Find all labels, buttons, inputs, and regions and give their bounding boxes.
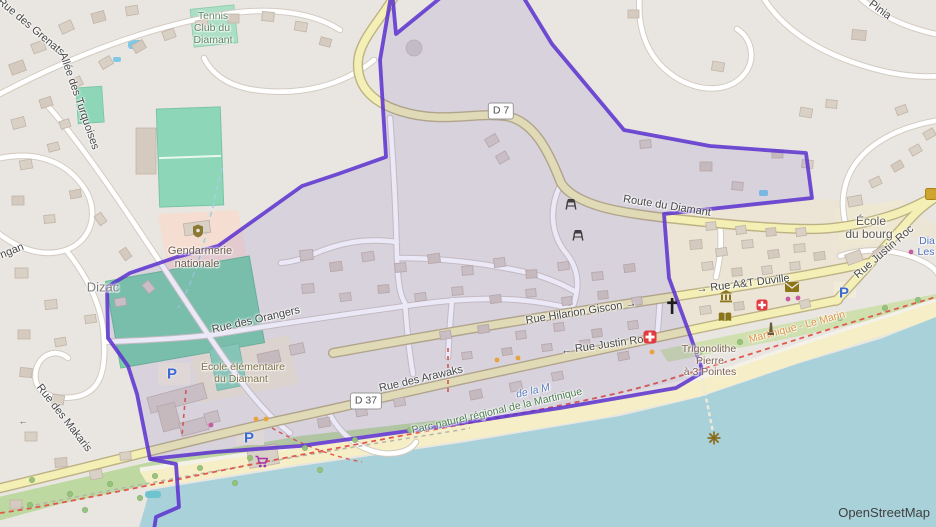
tree-icon (107, 481, 112, 486)
building (25, 432, 37, 441)
building (55, 457, 68, 467)
building (136, 128, 156, 174)
tree-icon (407, 427, 412, 432)
amenity-dot (264, 417, 269, 422)
parking-icon: P (244, 430, 254, 447)
building (45, 299, 58, 309)
building (294, 21, 307, 32)
poi-dot (209, 423, 214, 428)
building (766, 228, 777, 237)
road-shield-d37: D 37 (350, 393, 382, 410)
tree-icon (837, 315, 842, 320)
amenity-dot (495, 358, 500, 363)
parking-icon: P (839, 285, 849, 302)
osm-attribution-link[interactable]: OpenStreetMap (838, 505, 930, 520)
building (125, 5, 138, 16)
pool (145, 491, 161, 498)
tree-icon (352, 437, 357, 442)
building (701, 261, 713, 270)
tree-icon (82, 507, 87, 512)
tree-icon (27, 502, 32, 507)
building (852, 29, 867, 40)
map-canvas (0, 0, 936, 527)
tree-icon (787, 327, 792, 332)
oneway-arrow-icon: ← (19, 416, 28, 426)
tree-icon (197, 465, 202, 470)
poi-dot (796, 296, 801, 301)
building (262, 11, 275, 21)
building (628, 10, 639, 18)
parking-icon: P (167, 366, 177, 383)
tennis-courts (156, 107, 223, 207)
building (735, 225, 746, 234)
building (711, 61, 724, 72)
poi-dot (786, 297, 791, 302)
building (799, 107, 812, 118)
building (15, 268, 28, 278)
tree-icon (437, 421, 442, 426)
building (690, 239, 703, 249)
amenity-dot (516, 356, 521, 361)
tree-icon (247, 455, 252, 460)
tree-icon (302, 445, 307, 450)
building (767, 249, 779, 258)
building (19, 159, 32, 170)
map-viewport[interactable]: Rue des Grenats Allée des Turquoises nga… (0, 0, 936, 527)
tree-icon (137, 495, 142, 500)
building (742, 240, 754, 249)
building (706, 222, 717, 231)
building (795, 227, 806, 236)
pool (113, 57, 121, 62)
building (44, 215, 56, 224)
building (794, 244, 806, 253)
building (813, 251, 825, 260)
building (18, 330, 30, 339)
building (228, 14, 239, 23)
tree-icon (317, 467, 322, 472)
tree-icon (915, 297, 920, 302)
building (69, 189, 81, 199)
building (195, 19, 208, 30)
building (761, 265, 772, 274)
building (732, 268, 743, 277)
building (847, 195, 863, 207)
tree-icon (152, 473, 157, 478)
building (120, 452, 132, 461)
road-shield-d7: D 7 (488, 103, 514, 120)
building (790, 262, 801, 271)
building (54, 337, 66, 347)
amenity-dot (650, 350, 655, 355)
building (715, 247, 727, 256)
building (12, 196, 24, 205)
tree-icon (29, 477, 34, 482)
building (84, 314, 96, 323)
building (699, 305, 711, 314)
building (826, 100, 838, 109)
building (733, 301, 744, 310)
amenity-dot (254, 417, 259, 422)
tree-icon (882, 305, 887, 310)
tree-icon (67, 491, 72, 496)
building (51, 394, 64, 405)
tree-icon (232, 480, 237, 485)
small-court (76, 86, 104, 124)
tree-icon (697, 349, 702, 354)
tree-icon (737, 339, 742, 344)
building (89, 469, 102, 480)
poi-dot (909, 250, 914, 255)
building (20, 367, 33, 377)
